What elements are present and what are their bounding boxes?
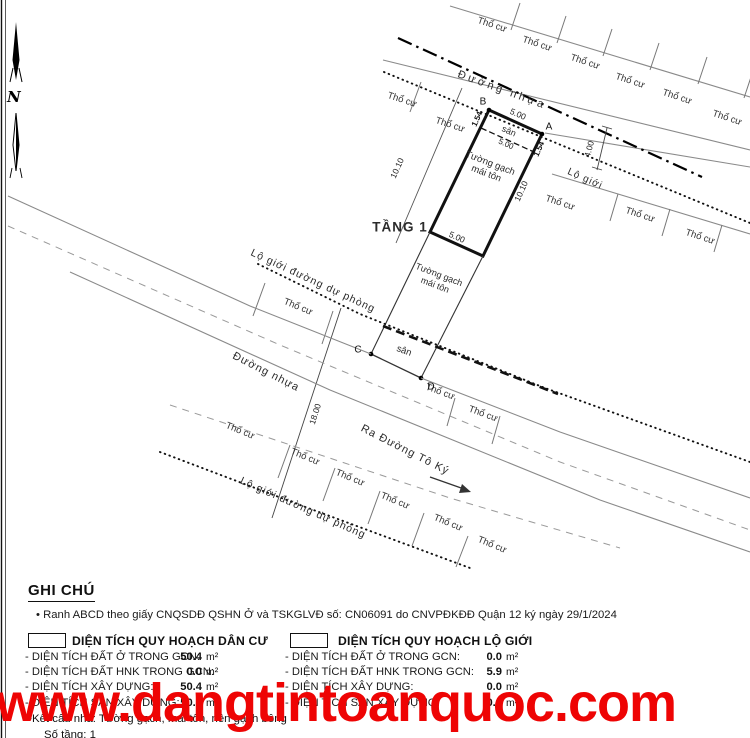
watermark-text: www.dangtintoanquoc.com xyxy=(0,672,750,734)
legend-header-lo-gioi: DIỆN TÍCH QUY HOẠCH LỘ GIỚI xyxy=(338,634,532,648)
parcel-side-lines xyxy=(371,232,483,378)
point-d-label: D xyxy=(427,382,434,393)
dim-18m-line xyxy=(272,308,341,518)
legend-note-text: Ranh ABCD theo giấy CNQSDĐ QSHN Ở và TSK… xyxy=(43,609,617,621)
legend-row-unit: m² xyxy=(206,651,218,663)
point-a-label: A xyxy=(546,122,553,133)
direction-arrow-icon xyxy=(430,477,471,493)
point-c-label: C xyxy=(354,345,361,356)
legend-header-dan-cu: DIỆN TÍCH QUY HOẠCH DÂN CƯ xyxy=(72,634,268,648)
legend-row-label: - DIỆN TÍCH ĐẤT Ở TRONG GCN: xyxy=(285,651,460,663)
legend-row-value: 50.4 xyxy=(150,651,202,663)
legend-swatch-dan-cu xyxy=(28,633,66,648)
floor-label: TẦNG 1 xyxy=(372,220,428,235)
dim-4m-line xyxy=(592,126,612,170)
bullet-icon: • xyxy=(36,609,40,621)
legend-row-value: 0.0 xyxy=(450,651,502,663)
legend-note: • Ranh ABCD theo giấy CNQSDĐ QSHN Ở và T… xyxy=(36,609,617,621)
legend-title: GHI CHÚ xyxy=(28,582,95,602)
legend-swatch-lo-gioi xyxy=(290,633,328,648)
top-road-centerline xyxy=(398,38,702,177)
legend-row-unit: m² xyxy=(506,651,518,663)
north-letter: N xyxy=(7,88,21,106)
point-b-label: B xyxy=(480,97,487,108)
survey-drawing-page: N Thổ cư Thổ cư Thổ cư Thổ cư Thổ cư Thổ… xyxy=(0,0,750,738)
